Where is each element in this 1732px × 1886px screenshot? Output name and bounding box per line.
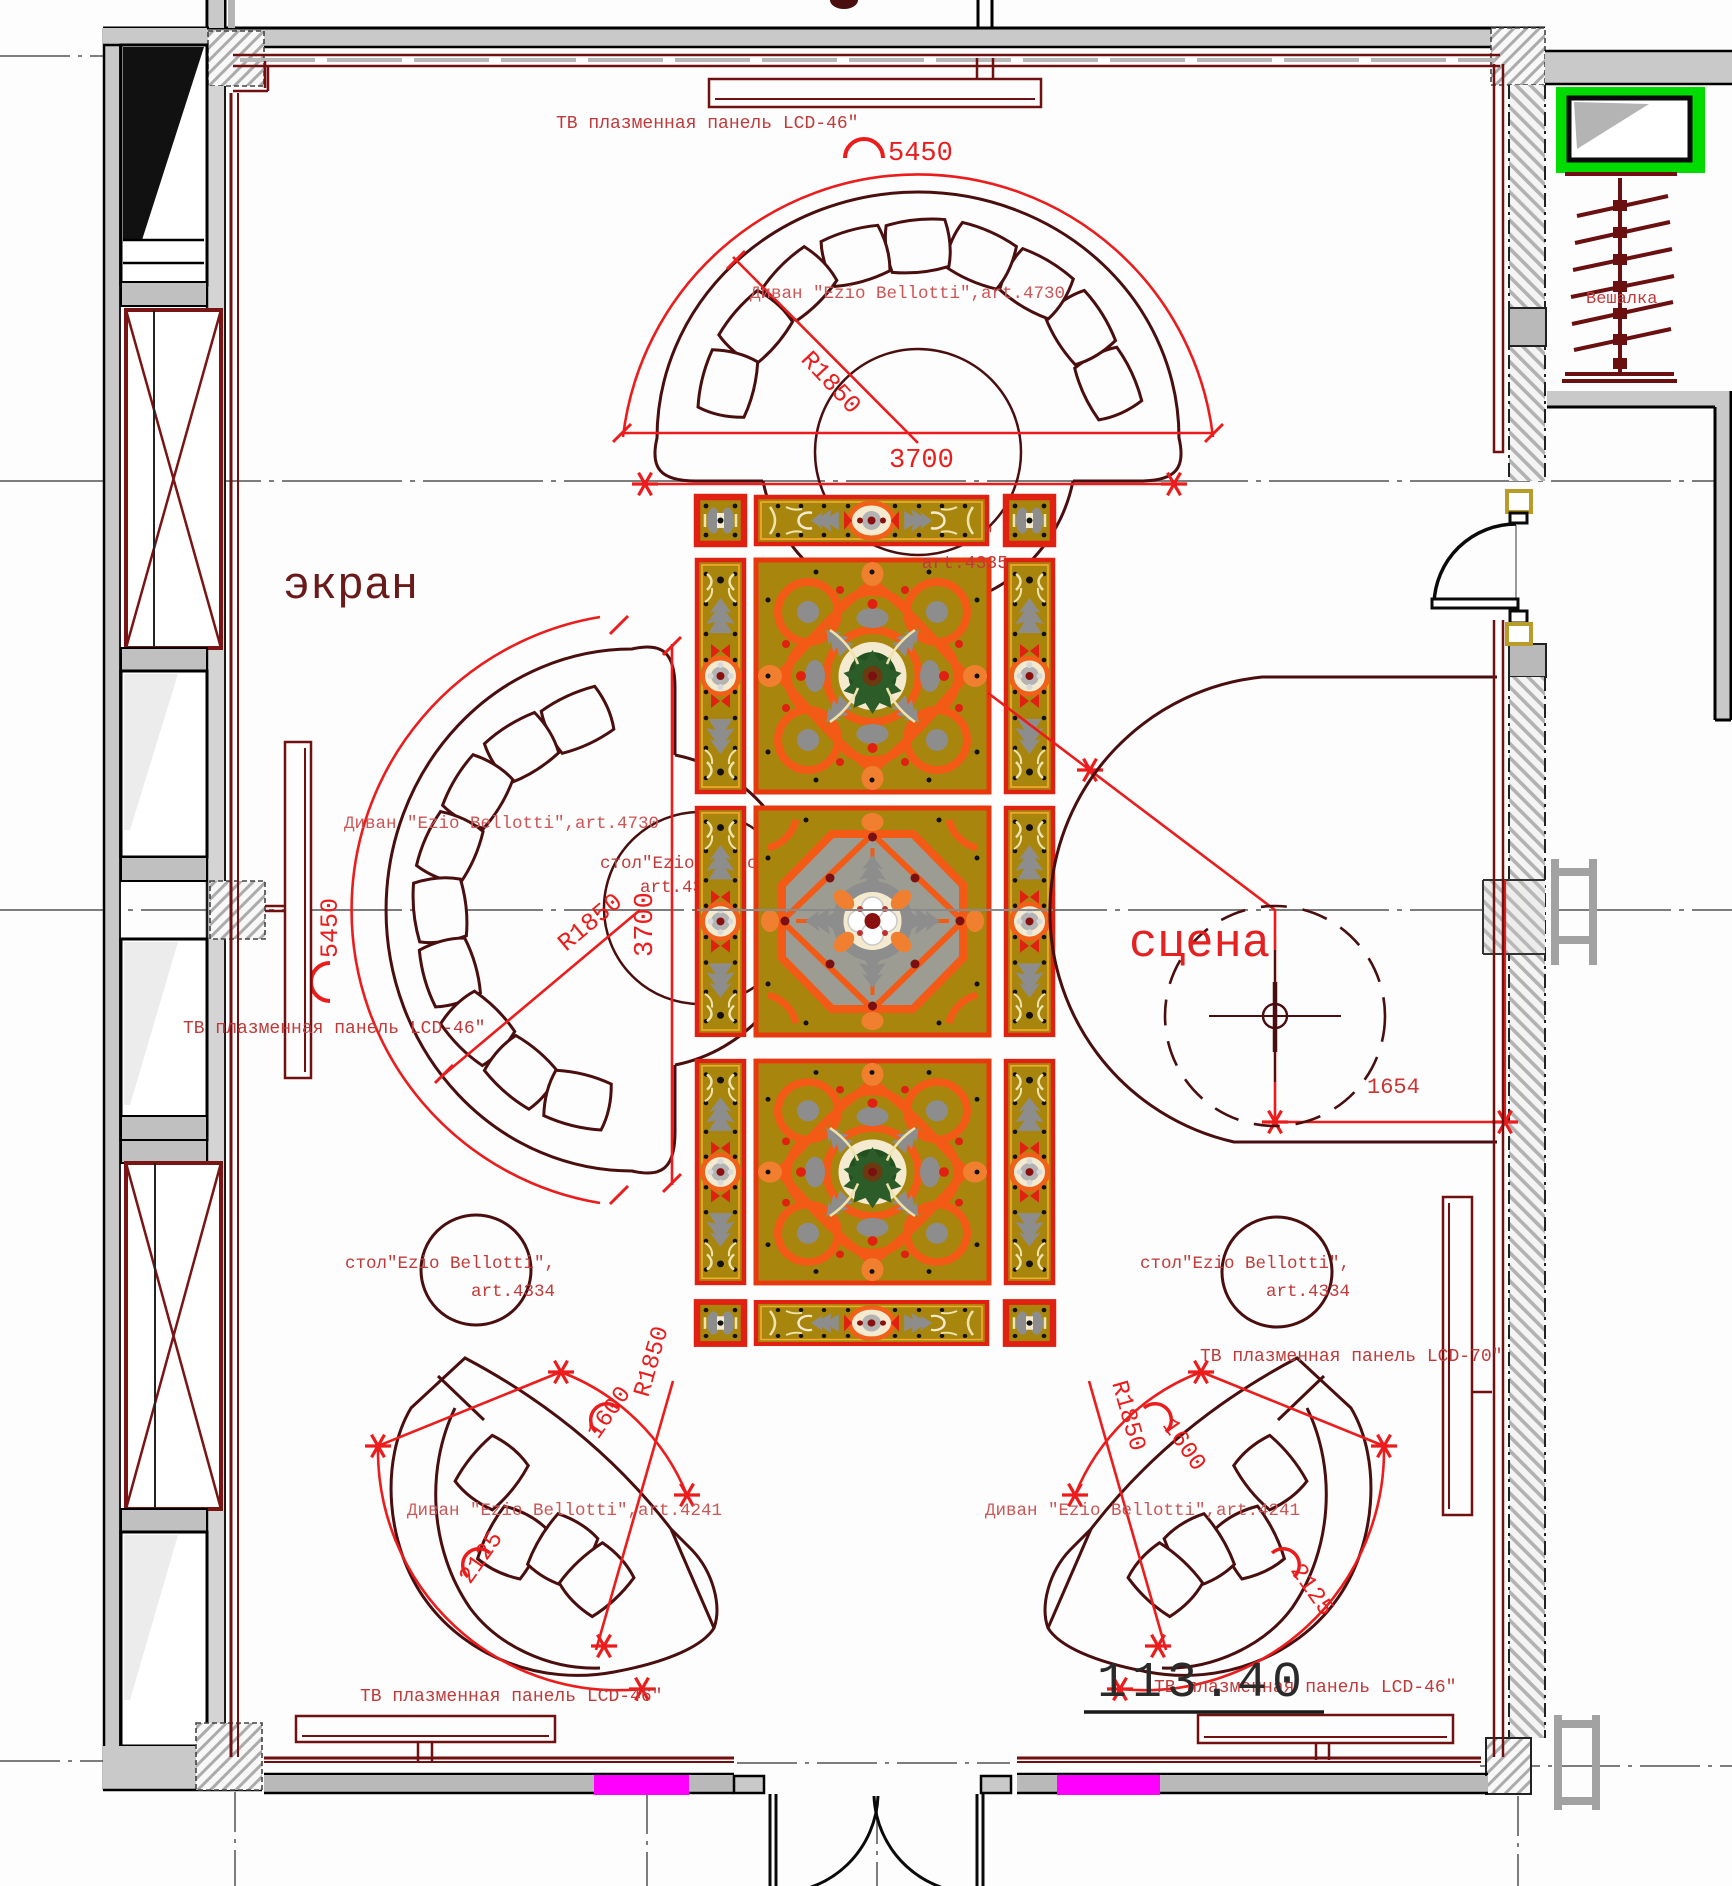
svg-text:art.4335: art.4335 (922, 554, 1008, 574)
svg-text:ТВ плазменная панель LCD-46": ТВ плазменная панель LCD-46" (183, 1019, 485, 1039)
svg-text:ТВ плазменная панель LCD-46": ТВ плазменная панель LCD-46" (556, 114, 858, 134)
svg-text:5450: 5450 (316, 898, 345, 958)
svg-text:3700: 3700 (631, 892, 661, 957)
svg-text:art.4334: art.4334 (471, 1282, 555, 1302)
svg-text:сцена: сцена (1129, 918, 1270, 971)
svg-text:стол"Ezio Bellotti",: стол"Ezio Bellotti", (1140, 1254, 1350, 1274)
svg-text:экран: экран (283, 561, 418, 612)
svg-text:Диван "Ezio Bellotti",art.4730: Диван "Ezio Bellotti",art.4730 (750, 284, 1065, 304)
svg-text:3700: 3700 (889, 446, 954, 476)
svg-text:Диван "Ezio Bellotti",art.4241: Диван "Ezio Bellotti",art.4241 (407, 1501, 722, 1521)
svg-text:Диван "Ezio Bellotti",art.4730: Диван "Ezio Bellotti",art.4730 (344, 814, 659, 834)
svg-text:Диван "Ezio Bellotti",art.4241: Диван "Ezio Bellotti",art.4241 (985, 1501, 1300, 1521)
svg-text:ТВ плазменная панель LCD-46": ТВ плазменная панель LCD-46" (360, 1687, 662, 1707)
svg-text:art.4334: art.4334 (1266, 1282, 1350, 1302)
svg-text:ТВ плазменная панель LCD-70": ТВ плазменная панель LCD-70" (1200, 1347, 1502, 1367)
svg-text:": " (983, 526, 994, 546)
svg-text:Вешалка: Вешалка (1586, 290, 1657, 309)
svg-text:1654: 1654 (1367, 1075, 1420, 1100)
svg-text:113.40: 113.40 (1097, 1655, 1307, 1712)
svg-text:стол"Ezio Bellotti",: стол"Ezio Bellotti", (345, 1254, 555, 1274)
svg-text:5450: 5450 (888, 139, 953, 169)
